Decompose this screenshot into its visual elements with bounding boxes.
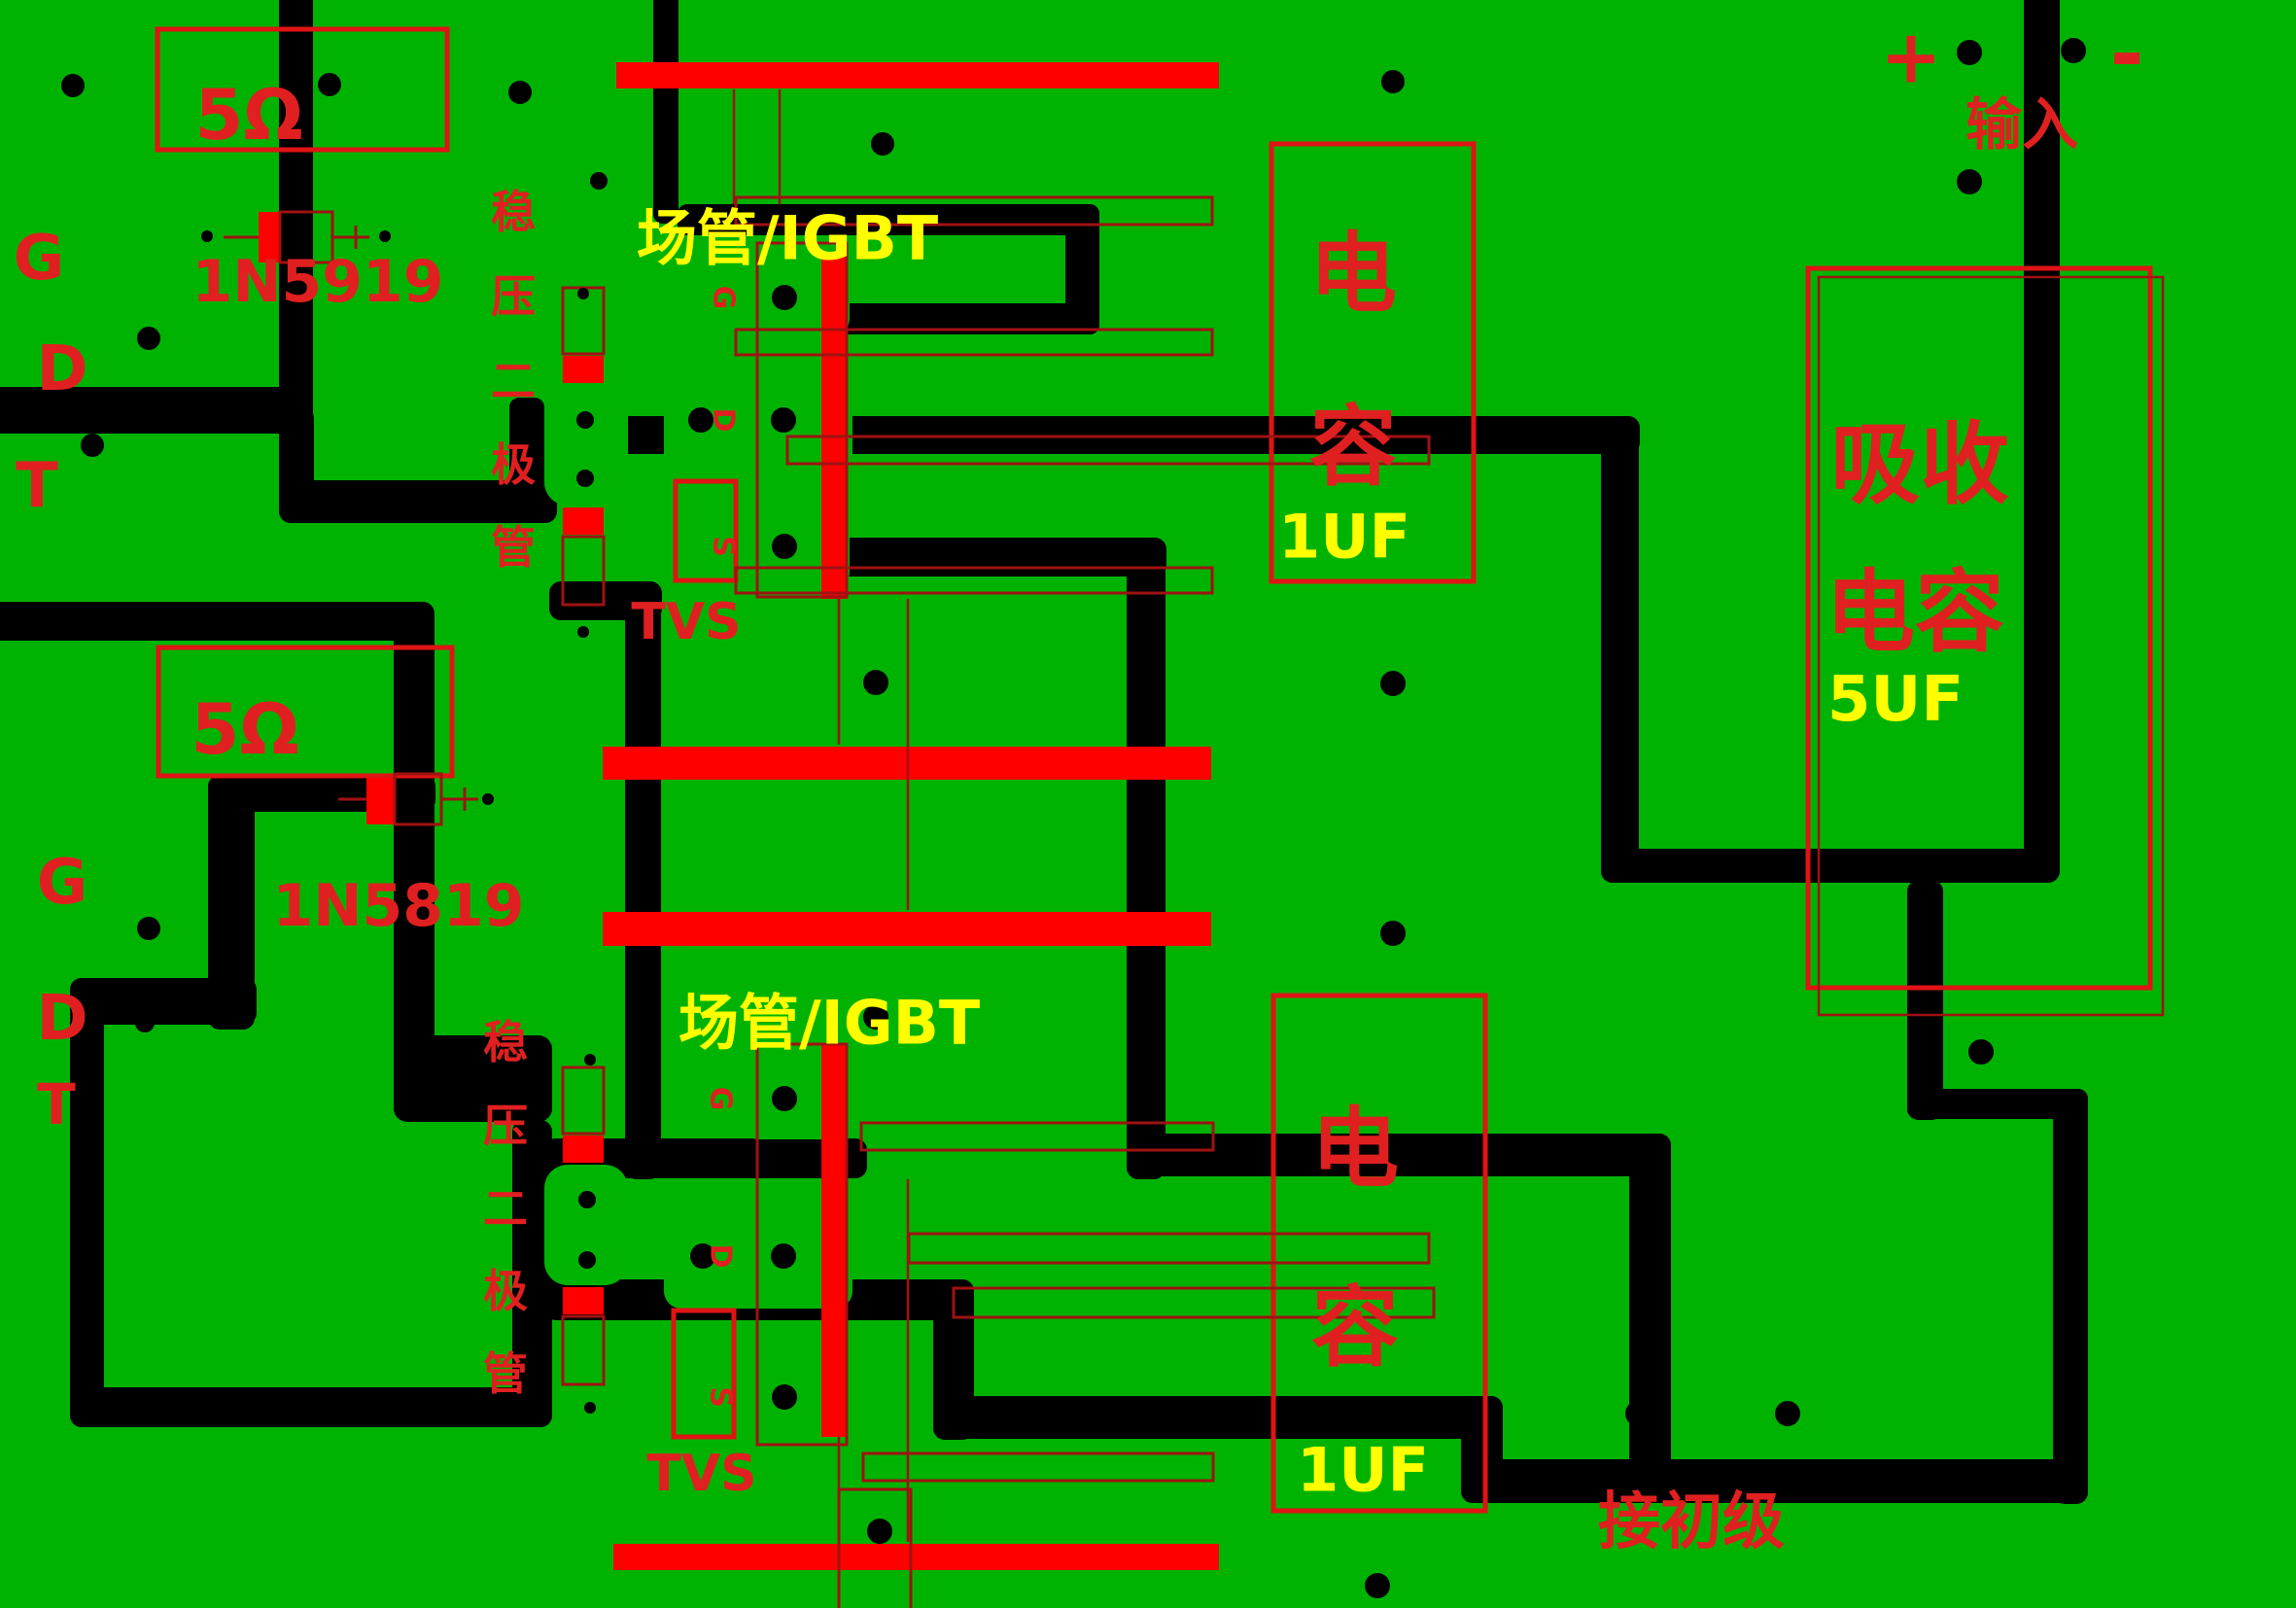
pin-via bbox=[772, 534, 797, 559]
zener-pad bbox=[563, 1287, 604, 1314]
primary-label: 接初级 bbox=[1598, 1486, 1785, 1558]
power-bar bbox=[613, 1544, 1219, 1570]
diode-pad bbox=[366, 774, 395, 824]
terminal-label-t: T bbox=[16, 450, 58, 522]
via bbox=[1365, 1573, 1390, 1598]
via bbox=[1625, 1401, 1651, 1426]
igbt-pin-g: G bbox=[704, 1087, 738, 1111]
resistor-label: 5Ω bbox=[191, 688, 298, 770]
snubber-value: 5UF bbox=[1827, 664, 1964, 736]
igbt-label: 场管/IGBT bbox=[637, 203, 938, 274]
input-label: 输入 bbox=[1966, 91, 2078, 157]
capacitor-value: 1UF bbox=[1297, 1435, 1429, 1506]
capacitor-name-char: 容 bbox=[1309, 397, 1397, 499]
trace-segment bbox=[394, 602, 435, 1080]
zener-pad bbox=[563, 356, 604, 383]
resistor-label: 5Ω bbox=[194, 74, 302, 156]
via-dot bbox=[325, 793, 336, 805]
igbt-pin-s: S bbox=[707, 536, 741, 557]
zener-pad-isle bbox=[544, 385, 628, 506]
via-dot bbox=[201, 230, 213, 242]
terminal-label-d: D bbox=[36, 983, 87, 1055]
igbt-pin-s: S bbox=[704, 1386, 738, 1408]
zener-via bbox=[576, 411, 594, 429]
trace-segment bbox=[933, 1396, 1503, 1439]
capacitor-name-char: 电 bbox=[1311, 1099, 1399, 1201]
via-dot bbox=[584, 1054, 596, 1066]
zener-pad bbox=[563, 507, 604, 535]
via bbox=[1957, 169, 1982, 194]
zener-label-char: 压 bbox=[491, 270, 536, 323]
via-dot bbox=[577, 626, 589, 638]
via bbox=[871, 132, 894, 156]
trace-segment bbox=[2053, 1089, 2088, 1504]
via-dot bbox=[482, 793, 494, 805]
via bbox=[1380, 671, 1406, 696]
input-minus: - bbox=[2110, 6, 2144, 101]
via bbox=[863, 670, 888, 695]
via bbox=[1380, 921, 1406, 946]
zener-label-char: 稳 bbox=[491, 186, 536, 238]
tvs-label: TVS bbox=[631, 593, 741, 651]
terminal-label-g: G bbox=[37, 847, 88, 919]
igbt-pin-d: D bbox=[704, 1244, 738, 1269]
zener-label-char: 压 bbox=[483, 1100, 528, 1152]
terminal-label-d: D bbox=[36, 333, 87, 405]
tvs-label: TVS bbox=[646, 1445, 756, 1503]
pin-via bbox=[772, 1384, 797, 1410]
terminal-label-g: G bbox=[14, 223, 65, 295]
zener-label-char: 管 bbox=[483, 1347, 528, 1400]
zener-label-char: 极 bbox=[483, 1265, 528, 1317]
via bbox=[318, 73, 341, 96]
via bbox=[135, 1013, 155, 1032]
zener-via bbox=[578, 1191, 596, 1208]
igbt-label: 场管/IGBT bbox=[678, 988, 980, 1059]
diode-label: 1N5919 bbox=[192, 248, 444, 316]
trace-segment bbox=[0, 602, 434, 641]
pin-via bbox=[772, 1086, 797, 1111]
capacitor-name-char: 电 bbox=[1309, 224, 1397, 326]
via bbox=[1381, 70, 1405, 93]
snubber-name-line2: 电容 bbox=[1826, 561, 2004, 665]
trace-segment bbox=[653, 0, 678, 224]
via-dot bbox=[577, 288, 589, 299]
via bbox=[508, 81, 532, 104]
via bbox=[1957, 40, 1982, 65]
zener-label-char: 极 bbox=[491, 438, 536, 491]
zener-via bbox=[578, 1251, 596, 1269]
trace-segment bbox=[279, 0, 313, 418]
igbt-pin-d: D bbox=[707, 408, 741, 433]
via bbox=[81, 434, 104, 457]
trace-segment bbox=[394, 1035, 552, 1122]
via bbox=[1968, 1039, 1994, 1065]
terminal-label-t: T bbox=[37, 1071, 76, 1137]
via bbox=[590, 172, 608, 190]
snubber-name-line1: 吸收 bbox=[1830, 413, 2009, 517]
trace-segment bbox=[1629, 1134, 1671, 1503]
zener-pad bbox=[563, 1136, 604, 1163]
pin-via bbox=[772, 285, 797, 310]
pin-via bbox=[771, 407, 796, 433]
via bbox=[1775, 1401, 1800, 1426]
zener-label-char: 稳 bbox=[483, 1016, 528, 1068]
trace-segment bbox=[1127, 1134, 1671, 1176]
via bbox=[137, 917, 160, 940]
input-plus: + bbox=[1880, 14, 1942, 100]
capacitor-name-char: 容 bbox=[1311, 1277, 1399, 1380]
zener-label-char: 二 bbox=[483, 1182, 528, 1235]
zener-label-char: 管 bbox=[491, 521, 536, 574]
trace-segment bbox=[1601, 416, 1639, 883]
trace-segment bbox=[1601, 849, 2060, 883]
via-dot bbox=[584, 1402, 596, 1414]
trace-segment bbox=[1461, 1396, 1503, 1503]
diode-label: 1N5819 bbox=[273, 872, 525, 940]
igbt-pin-bar bbox=[821, 1044, 848, 1437]
power-bar bbox=[603, 912, 1211, 946]
via bbox=[2061, 38, 2086, 63]
trace-segment bbox=[1907, 880, 1943, 1120]
zener-label-char: 二 bbox=[491, 355, 536, 407]
via bbox=[61, 74, 85, 97]
pcb-canvas: G D T 5Ω 1N5919 稳 压 二 极 管 场管/IGBT G D S … bbox=[0, 0, 2296, 1608]
pin-via bbox=[771, 1243, 796, 1269]
via bbox=[137, 327, 160, 350]
zener-via bbox=[576, 470, 594, 487]
trace-segment bbox=[1127, 538, 1165, 1179]
via bbox=[867, 1519, 892, 1544]
igbt-pin-g: G bbox=[707, 286, 741, 310]
capacitor-value: 1UF bbox=[1278, 502, 1410, 573]
via-dot bbox=[379, 230, 391, 242]
igbt-pin-bar bbox=[821, 257, 848, 599]
trace-segment bbox=[625, 581, 661, 1179]
trace-segment bbox=[70, 1387, 552, 1427]
power-bar bbox=[616, 62, 1219, 88]
